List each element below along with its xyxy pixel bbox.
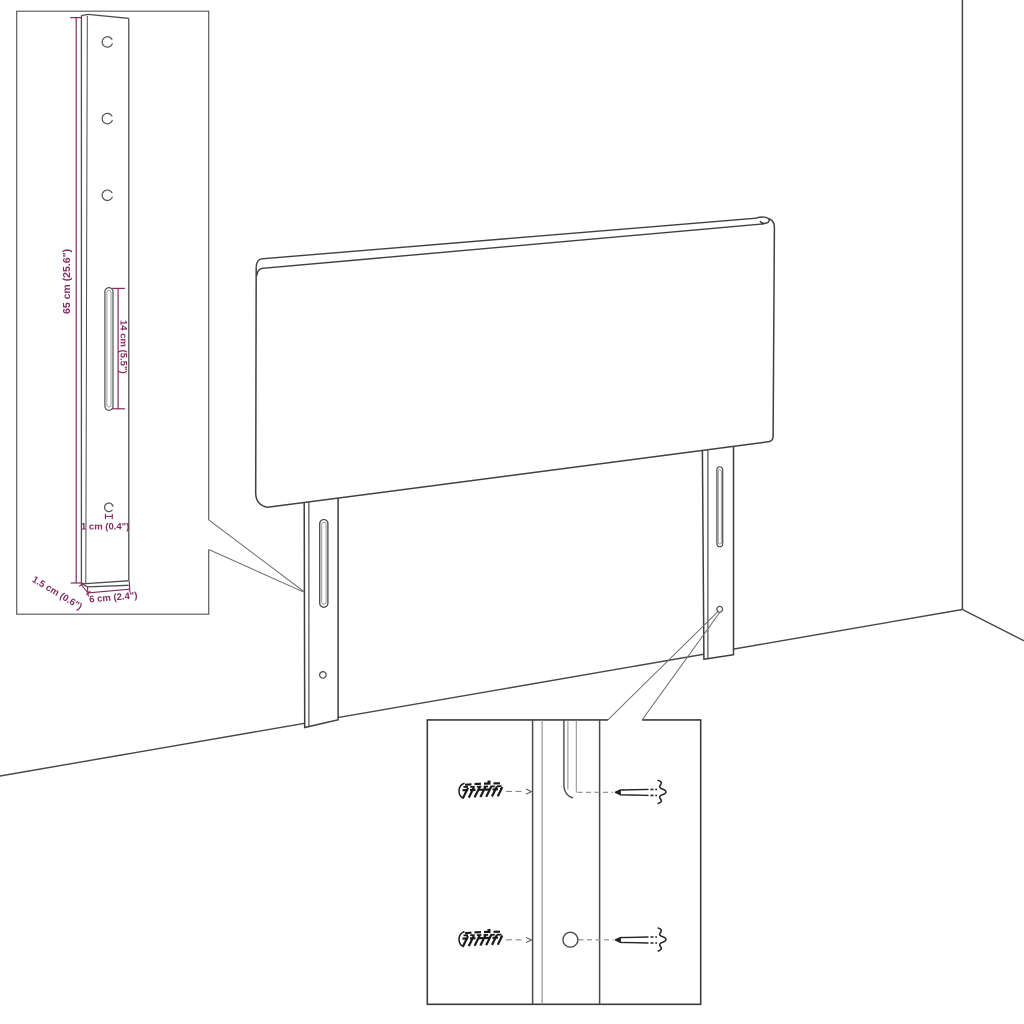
svg-text:1 cm (0.4"): 1 cm (0.4") — [81, 522, 129, 533]
svg-text:14 cm (5.5"): 14 cm (5.5") — [118, 320, 129, 374]
svg-text:65 cm (25.6"): 65 cm (25.6") — [61, 249, 73, 314]
